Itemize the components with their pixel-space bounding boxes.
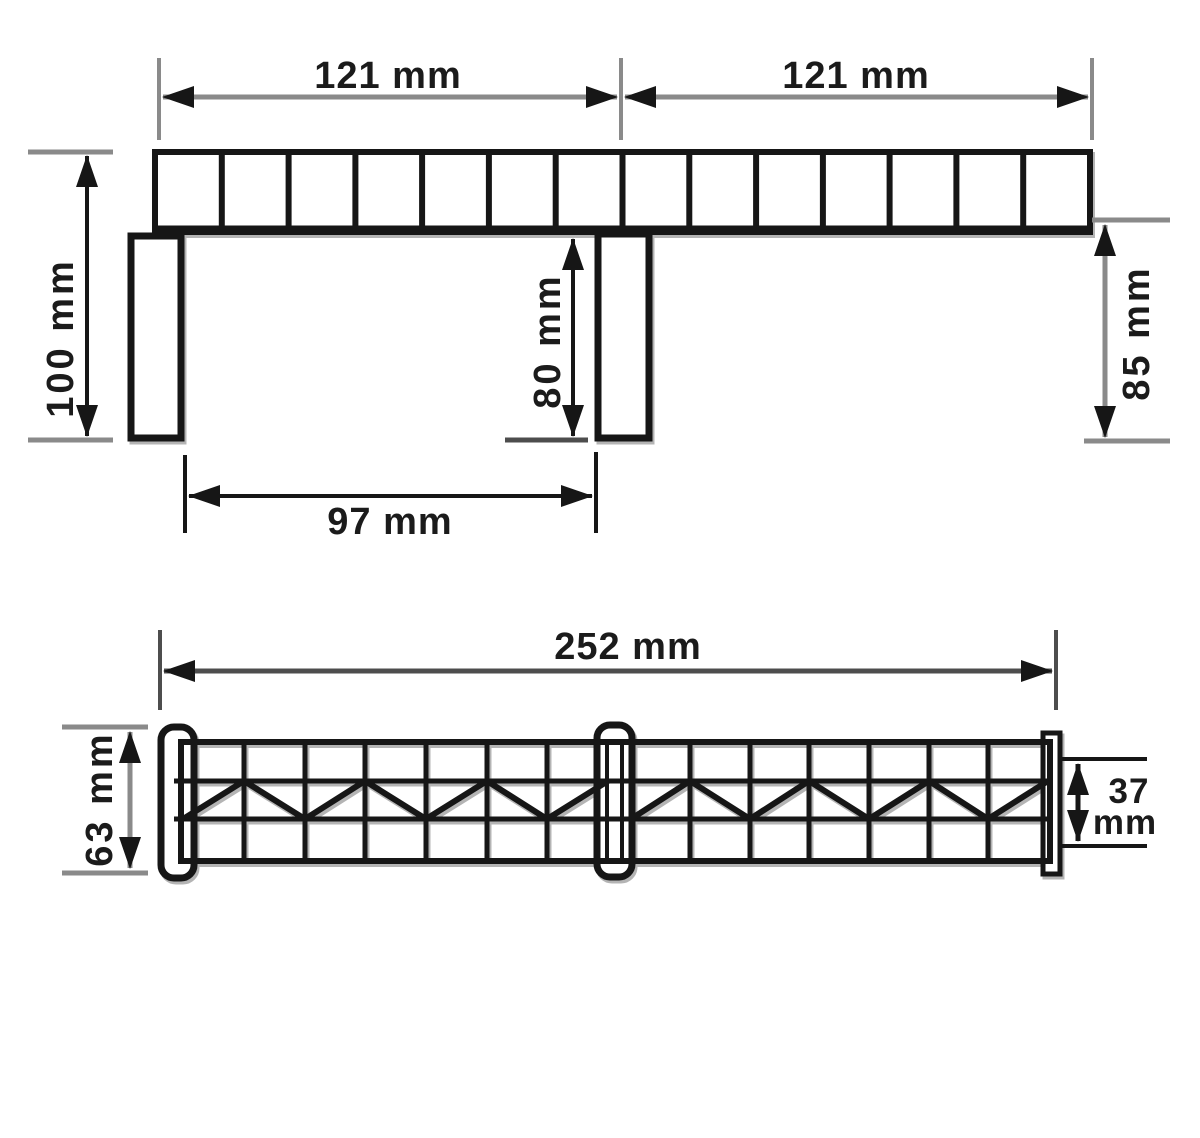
truss-structure [161, 725, 1060, 878]
dim-label-girder-height-unit: mm [1093, 803, 1157, 842]
dim-label-span-left: 121 mm [314, 55, 462, 97]
dim-label-overall-height: 100 mm [40, 258, 82, 418]
dimension-girder-height: 37 mm [1059, 759, 1157, 846]
dim-label-span-right: 121 mm [782, 55, 930, 97]
post-middle-fill [597, 725, 632, 877]
side-view: 252 mm 63 mm [62, 626, 1157, 878]
dimension-side-height: 63 mm [62, 727, 148, 873]
truss-diagonals-left [183, 781, 608, 819]
technical-drawing: 121 mm 121 mm 100 mm 80 mm 85 mm [0, 0, 1200, 1138]
top-view-structure [131, 152, 1091, 438]
truss-diagonals-right [631, 781, 1048, 819]
dimension-span-right: 121 mm [625, 55, 1092, 140]
dim-label-overall-length: 252 mm [554, 626, 702, 668]
dim-label-right-height: 85 mm [1116, 265, 1158, 400]
pier-left [131, 236, 181, 438]
dim-label-pier-spacing: 97 mm [327, 501, 452, 543]
dimension-right-height: 85 mm [1084, 220, 1170, 441]
dimension-overall-height: 100 mm [28, 152, 113, 440]
dimension-pier-height: 80 mm [505, 239, 588, 440]
top-view: 121 mm 121 mm 100 mm 80 mm 85 mm [28, 55, 1170, 543]
end-post-left-fill [161, 727, 194, 878]
pier-middle [598, 234, 649, 438]
dim-label-pier-height: 80 mm [527, 273, 569, 408]
dimension-pier-spacing: 97 mm [185, 452, 596, 543]
dim-label-side-height: 63 mm [79, 731, 121, 866]
dimension-overall-length: 252 mm [160, 626, 1056, 710]
dimension-span-left: 121 mm [159, 55, 621, 140]
